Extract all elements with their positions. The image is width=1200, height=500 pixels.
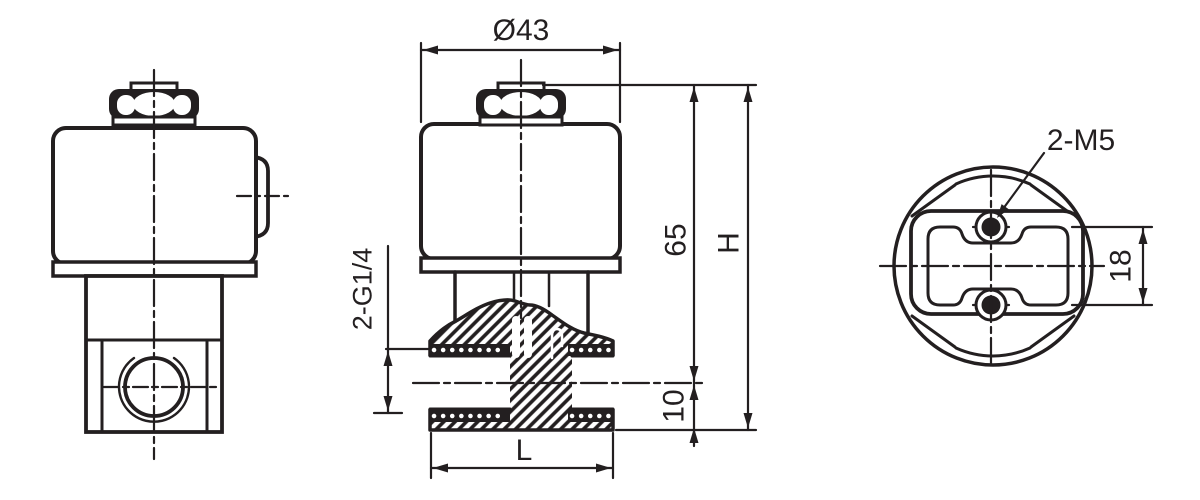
dim-label-port-center-height: 10 [658,389,691,422]
dim-label-coil-diameter: Ø43 [493,14,550,47]
dim-body-length: L [431,433,613,478]
top-view [880,167,1104,365]
dim-label-overall-height: H [713,232,746,254]
pilot-slot-1 [512,316,520,358]
dim-label-coil-height: 65 [660,223,693,256]
dim-port-thread: 2-G1/4 [347,246,429,413]
dim-label-body-length: L [516,434,533,467]
dim-label-mounting-thread: 2-M5 [1047,124,1115,157]
valve-drawing: Ø43 65 H 10 2-G1/4 [0,0,1200,500]
pilot-slot-2 [524,316,532,358]
drawing-canvas: Ø43 65 H 10 2-G1/4 [0,0,1200,500]
front-view [53,70,291,459]
dim-label-mounting-pitch: 18 [1105,249,1138,282]
dim-label-port-thread: 2-G1/4 [347,248,377,331]
